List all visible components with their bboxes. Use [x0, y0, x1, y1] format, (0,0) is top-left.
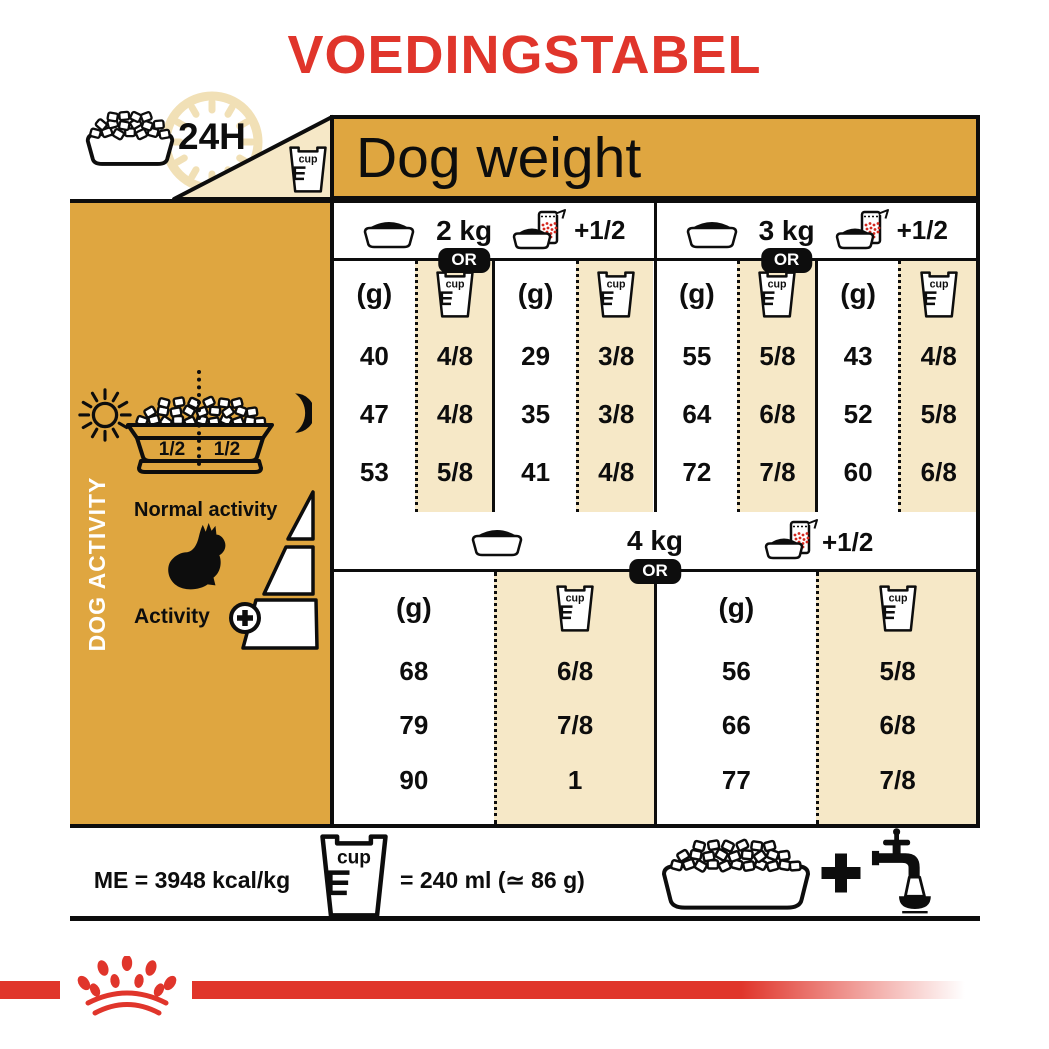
weight-4kg-stack: 4 kg OR	[334, 512, 976, 569]
svg-text:cup: cup	[888, 592, 907, 604]
cup-value: 3/8	[598, 341, 634, 372]
plus-half-label: +1/2	[897, 215, 948, 246]
cup-value: 5/8	[759, 341, 795, 372]
grams-value: 35	[521, 399, 550, 430]
cup-column: cup 5/8 6/8 7/8	[737, 261, 815, 512]
weight-4kg-cell: 4 kg OR +1/2	[334, 512, 976, 572]
kibble-bowl-icon	[656, 834, 816, 914]
grams-column: (g) 68 79 90	[334, 572, 494, 824]
dog-weight-header: Dog weight	[330, 115, 980, 200]
cup-equals-label: = 240 ml (≃ 86 g)	[400, 867, 585, 894]
block-3kg: (g) 55 64 72 cup 5/8 6/8	[654, 261, 977, 512]
or-badge: OR	[629, 559, 681, 584]
subtable: (g) 40 47 53 cup 4/8 4/8	[334, 261, 492, 512]
dog-weight-label: Dog weight	[356, 125, 641, 191]
cup-value: 4/8	[437, 399, 473, 430]
cup-value: 1	[568, 765, 582, 796]
grams-header: (g)	[718, 592, 754, 624]
block-4kg-right: (g) 56 66 77 cup 5/8 6/8	[654, 572, 977, 824]
cup-value: 5/8	[921, 399, 957, 430]
weight-3kg-cell: 3 kg OR +1/2	[654, 203, 977, 258]
bowl-with-pouch-icon	[835, 209, 891, 255]
cup-value: 3/8	[598, 399, 634, 430]
cup-value: 6/8	[759, 399, 795, 430]
half-left-label: 1/2	[159, 439, 185, 460]
page-title: VOEDINGSTABEL	[0, 24, 1049, 86]
grams-value: 40	[360, 341, 389, 372]
cup-value: 4/8	[437, 341, 473, 372]
grams-column: (g) 56 66 77	[657, 572, 817, 824]
plus-half-label: +1/2	[822, 527, 873, 558]
bowl-divider-dotted-line	[197, 370, 201, 466]
or-badge: OR	[761, 248, 813, 273]
grams-header: (g)	[518, 278, 554, 310]
subtable: (g) 68 79 90 cup 6/8 7/8	[334, 572, 654, 824]
moon-icon	[282, 391, 312, 435]
me-kcal-label: ME = 3948 kcal/kg	[72, 867, 312, 894]
subtable: (g) 56 66 77 cup 5/8 6/8	[657, 572, 977, 824]
measuring-cup-icon: cup	[919, 270, 959, 319]
grams-value: 77	[722, 765, 751, 796]
water-tap-icon	[864, 826, 934, 914]
cup-value: 5/8	[437, 457, 473, 488]
grams-header: (g)	[840, 278, 876, 310]
grams-value: 52	[844, 399, 873, 430]
cup-value: 6/8	[880, 710, 916, 741]
grams-column: (g) 55 64 72	[657, 261, 738, 512]
cup-value: 6/8	[557, 656, 593, 687]
bowl-with-pouch-icon	[764, 519, 820, 565]
measuring-cup-icon: cup	[596, 270, 636, 319]
grams-value: 79	[399, 710, 428, 741]
empty-bowl-icon	[685, 215, 739, 251]
feeding-table-page: VOEDINGSTABEL 24H cup Dog weight	[0, 0, 1049, 1049]
block-4kg-left: (g) 68 79 90 cup 6/8 7/8	[334, 572, 654, 824]
weight-3kg-stack: 3 kg OR	[745, 203, 829, 258]
grams-header: (g)	[396, 592, 432, 624]
bowl-with-pouch-icon	[512, 209, 568, 255]
weight-header-row: 2 kg OR +1/2 3 kg OR +1/2	[334, 203, 976, 261]
weight-label: 2 kg	[436, 215, 492, 247]
svg-text:cup: cup	[768, 278, 787, 290]
grams-value: 53	[360, 457, 389, 488]
grams-value: 55	[682, 341, 711, 372]
grams-value: 90	[399, 765, 428, 796]
measuring-cup-icon: cup	[555, 584, 595, 633]
cup-value: 4/8	[598, 457, 634, 488]
cup-column: cup 4/8 5/8 6/8	[898, 261, 976, 512]
values-row-bottom: (g) 68 79 90 cup 6/8 7/8	[334, 572, 976, 824]
grams-value: 60	[844, 457, 873, 488]
half-right-label: 1/2	[214, 439, 240, 460]
pouch-group: +1/2	[764, 519, 873, 565]
cup-value: 6/8	[921, 457, 957, 488]
weight-label: 4 kg	[627, 525, 683, 557]
measuring-cup-icon: cup	[435, 270, 475, 319]
cup-value: 7/8	[759, 457, 795, 488]
subtable: (g) 29 35 41 cup 3/8 3/8	[492, 261, 653, 512]
cup-column: cup 6/8 7/8 1	[494, 572, 654, 824]
weight-2kg-cell: 2 kg OR +1/2	[334, 203, 654, 258]
subtable: (g) 55 64 72 cup 5/8 6/8	[657, 261, 815, 512]
grams-value: 72	[682, 457, 711, 488]
cup-value: 4/8	[921, 341, 957, 372]
grams-value: 29	[521, 341, 550, 372]
svg-text:cup: cup	[446, 278, 465, 290]
or-badge: OR	[438, 248, 490, 273]
grams-column: (g) 29 35 41	[495, 261, 576, 512]
grams-value: 66	[722, 710, 751, 741]
grams-value: 56	[722, 656, 751, 687]
dog-activity-label: DOG ACTIVITY	[84, 464, 114, 664]
dog-silhouette-icon	[158, 521, 230, 601]
weight-label: 3 kg	[759, 215, 815, 247]
weight-2kg-stack: 2 kg OR	[422, 203, 506, 258]
footer-divider-line	[70, 916, 980, 921]
grams-value: 43	[844, 341, 873, 372]
feeding-grid: 2 kg OR +1/2 3 kg OR +1/2	[330, 199, 980, 828]
plus-half-label: +1/2	[574, 215, 625, 246]
cup-value: 5/8	[880, 656, 916, 687]
subtable: (g) 43 52 60 cup 4/8 5/8	[815, 261, 976, 512]
grams-column: (g) 43 52 60	[818, 261, 899, 512]
measuring-cup-icon: cup	[288, 145, 328, 194]
svg-text:cup: cup	[607, 278, 626, 290]
measuring-cup-icon: cup	[318, 832, 390, 920]
measuring-cup-icon: cup	[878, 584, 918, 633]
svg-text:cup: cup	[929, 278, 948, 290]
grams-value: 47	[360, 399, 389, 430]
dog-activity-sidebar: 1/2 1/2 DOG ACTIVITY Normal activity Act…	[70, 199, 330, 828]
grams-value: 68	[399, 656, 428, 687]
cup-column: cup 3/8 3/8 4/8	[576, 261, 654, 512]
empty-bowl-icon	[362, 215, 416, 251]
grams-column: (g) 40 47 53	[334, 261, 415, 512]
cup-column: cup 4/8 4/8 5/8	[415, 261, 493, 512]
svg-text:cup: cup	[299, 154, 318, 166]
svg-text:cup: cup	[566, 592, 585, 604]
measuring-cup-icon: cup	[757, 270, 797, 319]
plus-icon	[820, 852, 862, 894]
cup-value: 7/8	[557, 710, 593, 741]
grams-value: 41	[521, 457, 550, 488]
values-row-top: (g) 40 47 53 cup 4/8 4/8	[334, 261, 976, 512]
activity-label: Activity	[134, 605, 210, 629]
plus-circle-icon	[227, 600, 263, 636]
crown-paw-logo	[74, 956, 180, 1018]
cup-value: 7/8	[880, 765, 916, 796]
block-2kg: (g) 40 47 53 cup 4/8 4/8	[334, 261, 654, 512]
grams-header: (g)	[356, 278, 392, 310]
grams-header: (g)	[679, 278, 715, 310]
svg-text:cup: cup	[337, 848, 371, 869]
grams-value: 64	[682, 399, 711, 430]
cup-column: cup 5/8 6/8 7/8	[816, 572, 976, 824]
